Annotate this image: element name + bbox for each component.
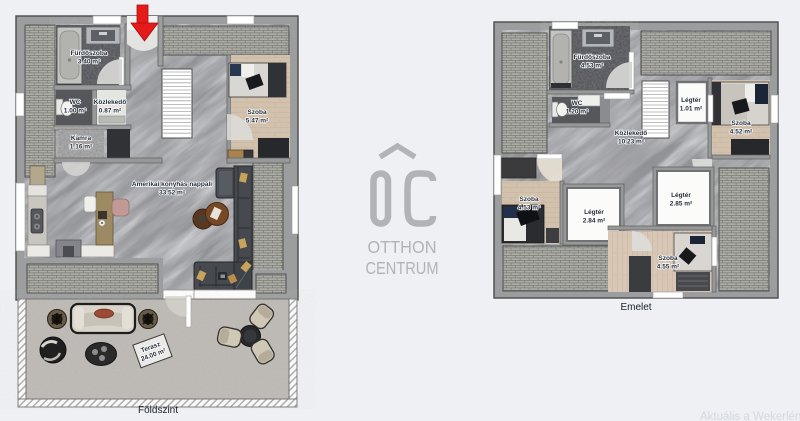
svg-text:Aktuális a Wekerlén: Aktuális a Wekerlén (700, 411, 800, 421)
svg-text:2.85 m²: 2.85 m² (670, 201, 693, 208)
svg-text:4.53 m²: 4.53 m² (581, 63, 604, 70)
svg-text:1.16 m²: 1.16 m² (70, 144, 93, 151)
svg-text:Amerikai konyhás nappali: Amerikai konyhás nappali (132, 181, 212, 188)
svg-text:Fürdőszoba: Fürdőszoba (71, 50, 108, 57)
svg-text:0.87 m²: 0.87 m² (99, 108, 122, 115)
svg-text:Szoba: Szoba (731, 120, 751, 127)
svg-text:33.52 m²: 33.52 m² (159, 190, 186, 197)
svg-text:4.55 m²: 4.55 m² (657, 264, 680, 271)
svg-text:Szoba: Szoba (658, 255, 678, 262)
svg-text:OTTHON: OTTHON (368, 237, 437, 257)
svg-text:Fürdőszoba: Fürdőszoba (574, 54, 611, 61)
svg-text:5.47 m²: 5.47 m² (246, 118, 269, 125)
svg-text:Szoba: Szoba (247, 109, 267, 116)
svg-text:Közlekedő: Közlekedő (94, 99, 127, 106)
svg-text:WC: WC (572, 100, 583, 107)
svg-text:1.20 m²: 1.20 m² (566, 109, 589, 116)
svg-text:Légtér: Légtér (681, 97, 701, 104)
svg-text:3.40 m²: 3.40 m² (78, 59, 101, 66)
svg-text:Légtér: Légtér (671, 192, 691, 199)
svg-text:4.52 m²: 4.52 m² (730, 129, 753, 136)
svg-text:10.23 m²: 10.23 m² (618, 139, 645, 146)
svg-text:4.53 m²: 4.53 m² (518, 205, 541, 212)
svg-text:1.01 m²: 1.01 m² (680, 106, 703, 113)
svg-text:WC: WC (70, 99, 81, 106)
svg-text:2.84 m²: 2.84 m² (583, 218, 606, 225)
svg-text:Földszint: Földszint (138, 405, 178, 416)
svg-text:Emelet: Emelet (620, 302, 651, 313)
svg-text:1.00 m²: 1.00 m² (64, 108, 87, 115)
svg-text:Légtér: Légtér (584, 209, 604, 216)
svg-text:Kamra: Kamra (71, 135, 92, 142)
svg-text:Közlekedő: Közlekedő (615, 130, 648, 137)
svg-text:CENTRUM: CENTRUM (366, 258, 439, 278)
svg-text:Szoba: Szoba (519, 196, 539, 203)
